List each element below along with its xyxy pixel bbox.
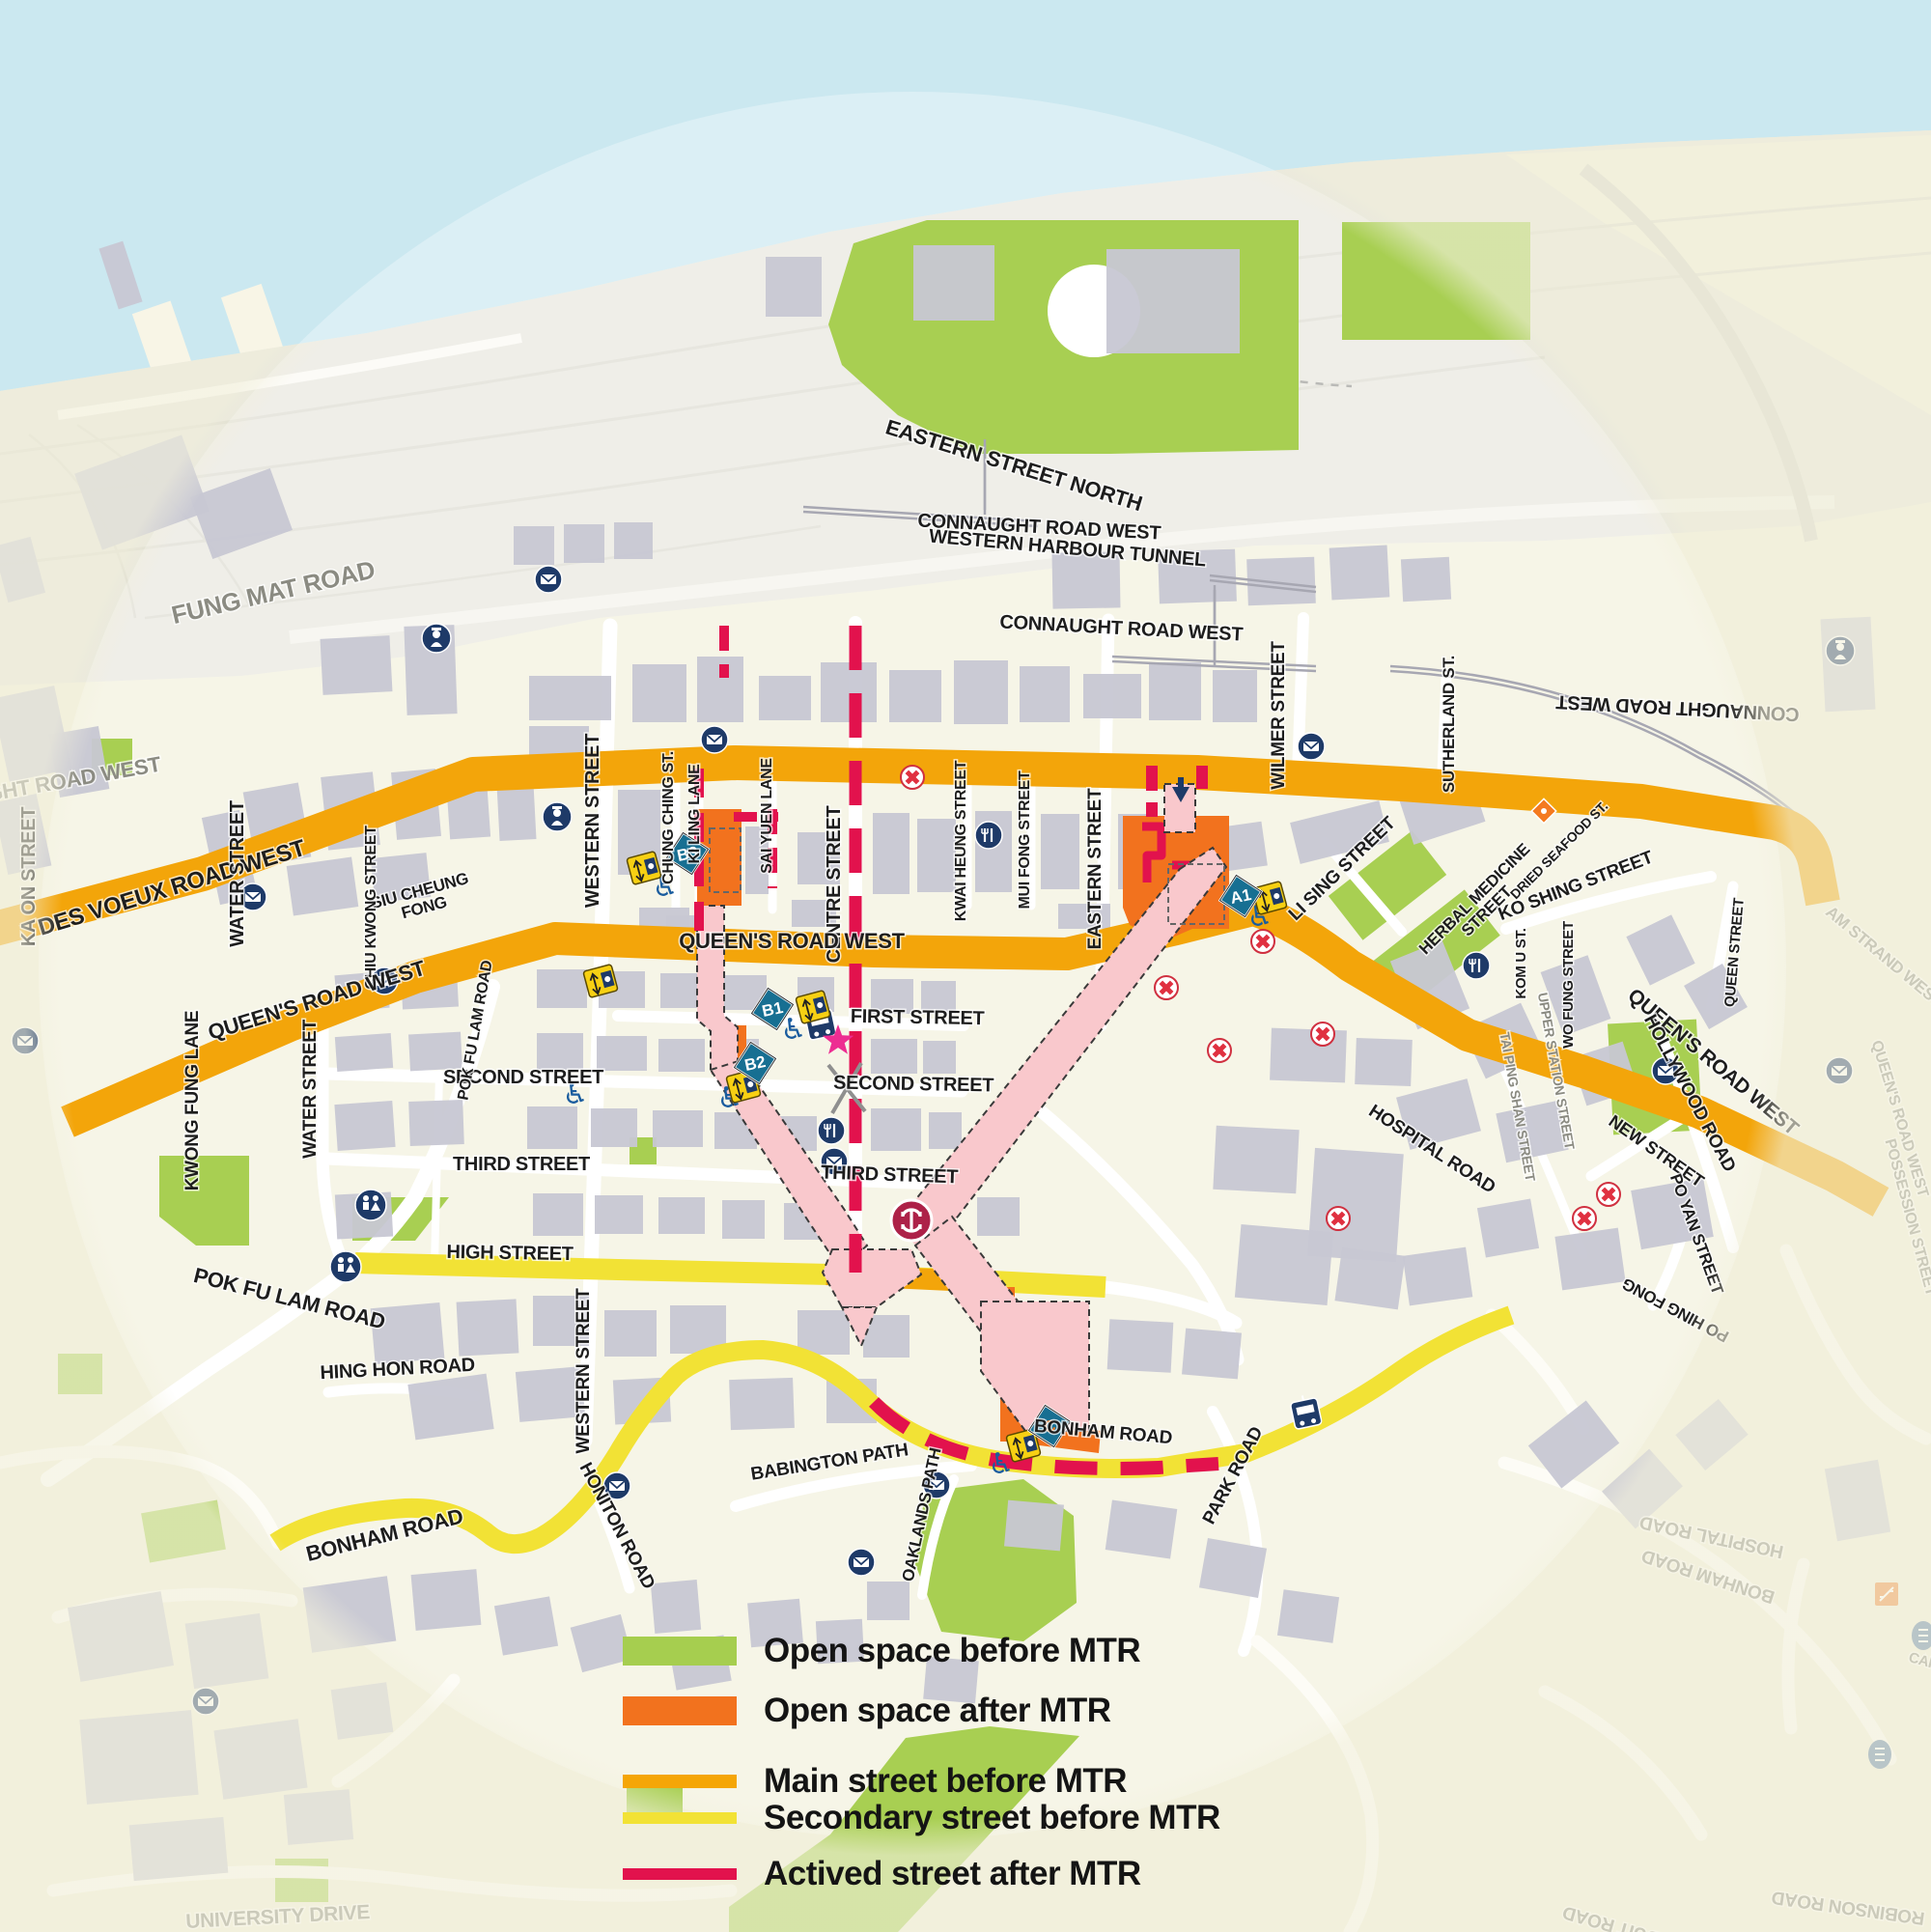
legend-row: Open space before MTR xyxy=(623,1634,1140,1667)
legend-label: Main street before MTR xyxy=(764,1764,1127,1798)
syp-mtr-map: ♿♿♿♿♿♿B3B1B2A1CFUNG MAT ROADAUGHT ROAD W… xyxy=(0,0,1931,1932)
legend-row: Main street before MTR xyxy=(623,1764,1127,1798)
legend-label: Open space after MTR xyxy=(764,1694,1111,1727)
legend-swatch-actived-street xyxy=(623,1868,737,1880)
legend-label: Open space before MTR xyxy=(764,1634,1140,1667)
legend-row: Open space after MTR xyxy=(623,1694,1111,1727)
legend-row: Secondary street before MTR xyxy=(623,1801,1220,1834)
legend-swatch-open-space-after xyxy=(623,1696,737,1725)
legend-swatch-secondary-street xyxy=(623,1812,737,1824)
legend-label: Actived street after MTR xyxy=(764,1857,1141,1890)
legend-row: Actived street after MTR xyxy=(623,1857,1141,1890)
legend-label: Secondary street before MTR xyxy=(764,1801,1220,1834)
legend-swatch-main-street xyxy=(623,1775,737,1788)
legend-swatch-open-space-before xyxy=(623,1637,737,1666)
